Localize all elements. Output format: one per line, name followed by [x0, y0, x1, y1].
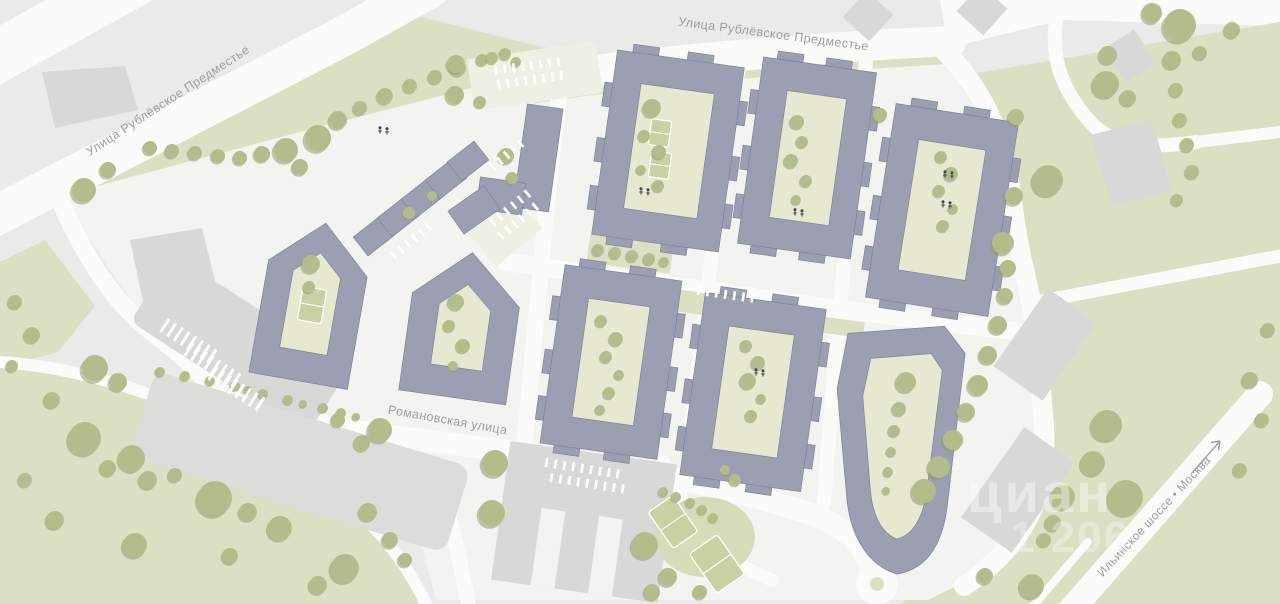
watermark-number: 1 206 [1010, 513, 1130, 562]
school-building [491, 441, 677, 603]
masterplan-canvas: Улица Рублёвское Предместье Улица Рублёв… [0, 0, 1280, 604]
site-plan-map[interactable]: Улица Рублёвское Предместье Улица Рублёв… [0, 0, 1280, 604]
